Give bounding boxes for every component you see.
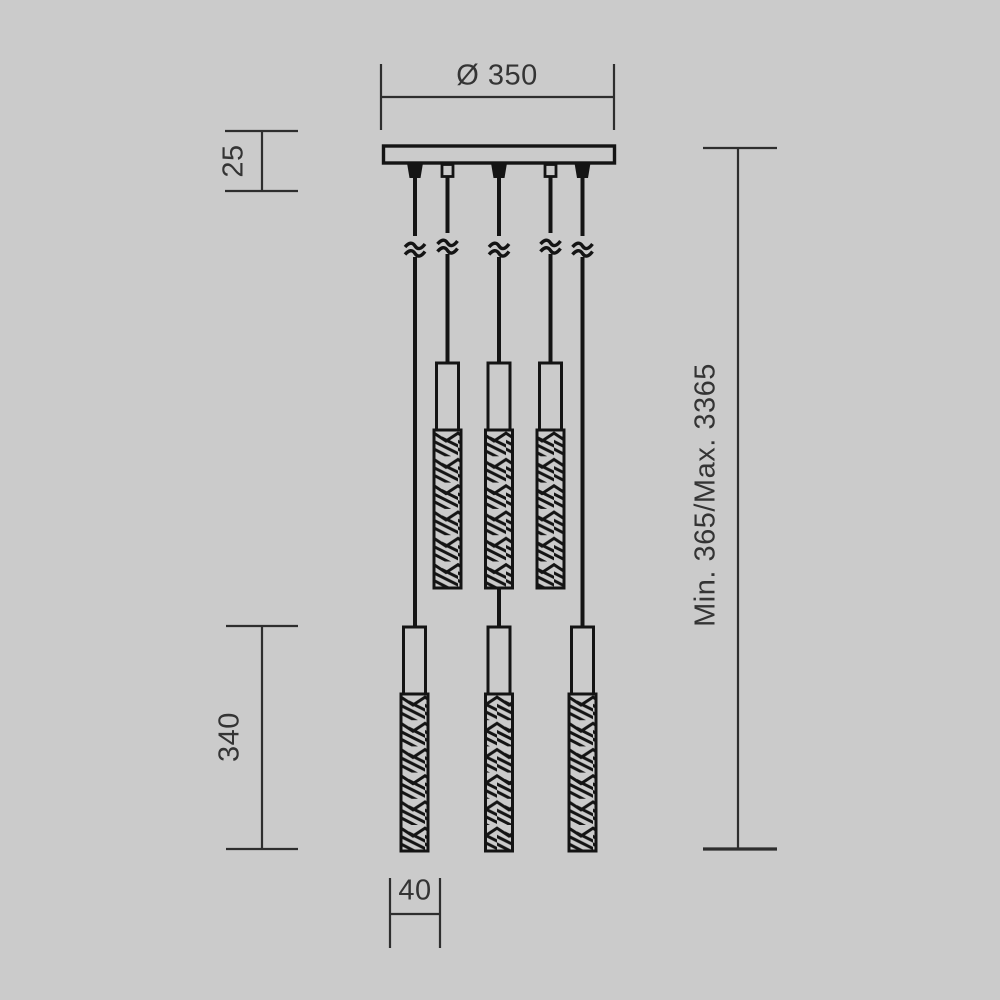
connector-filled-3 [575, 163, 591, 178]
pendant-lower-2 [486, 627, 513, 851]
connector-open-2 [545, 165, 556, 177]
lower-pendants [401, 627, 596, 851]
ceiling-canopy [384, 146, 615, 163]
label-canopy-diameter: Ø 350 [456, 60, 538, 93]
pendant-lower-1 [401, 627, 428, 851]
pendant-lower-3 [569, 627, 596, 851]
break-mark [571, 236, 595, 257]
break-mark [539, 233, 563, 254]
label-pendant-length: 340 [214, 712, 247, 762]
cable-connectors [407, 163, 591, 178]
connector-open-1 [442, 165, 453, 177]
chandelier-line-drawing [0, 0, 1000, 1000]
break-mark [487, 236, 511, 257]
pendant-upper-3 [537, 363, 564, 588]
label-suspension-height: Min. 365/Max. 3365 [690, 363, 723, 627]
pendant-upper-2 [486, 363, 513, 588]
connector-filled-2 [491, 163, 507, 178]
break-mark [403, 236, 427, 257]
drawing-canvas: Ø 350 25 340 Min. 365/Max. 3365 40 [0, 0, 1000, 1000]
break-mark [436, 233, 460, 254]
pendant-upper-1 [434, 363, 461, 588]
cable-break-marks [403, 233, 595, 257]
fixture [384, 146, 615, 851]
label-pendant-width: 40 [398, 875, 431, 908]
connector-filled-1 [407, 163, 423, 178]
upper-pendants [434, 363, 564, 588]
label-canopy-height: 25 [218, 144, 251, 177]
